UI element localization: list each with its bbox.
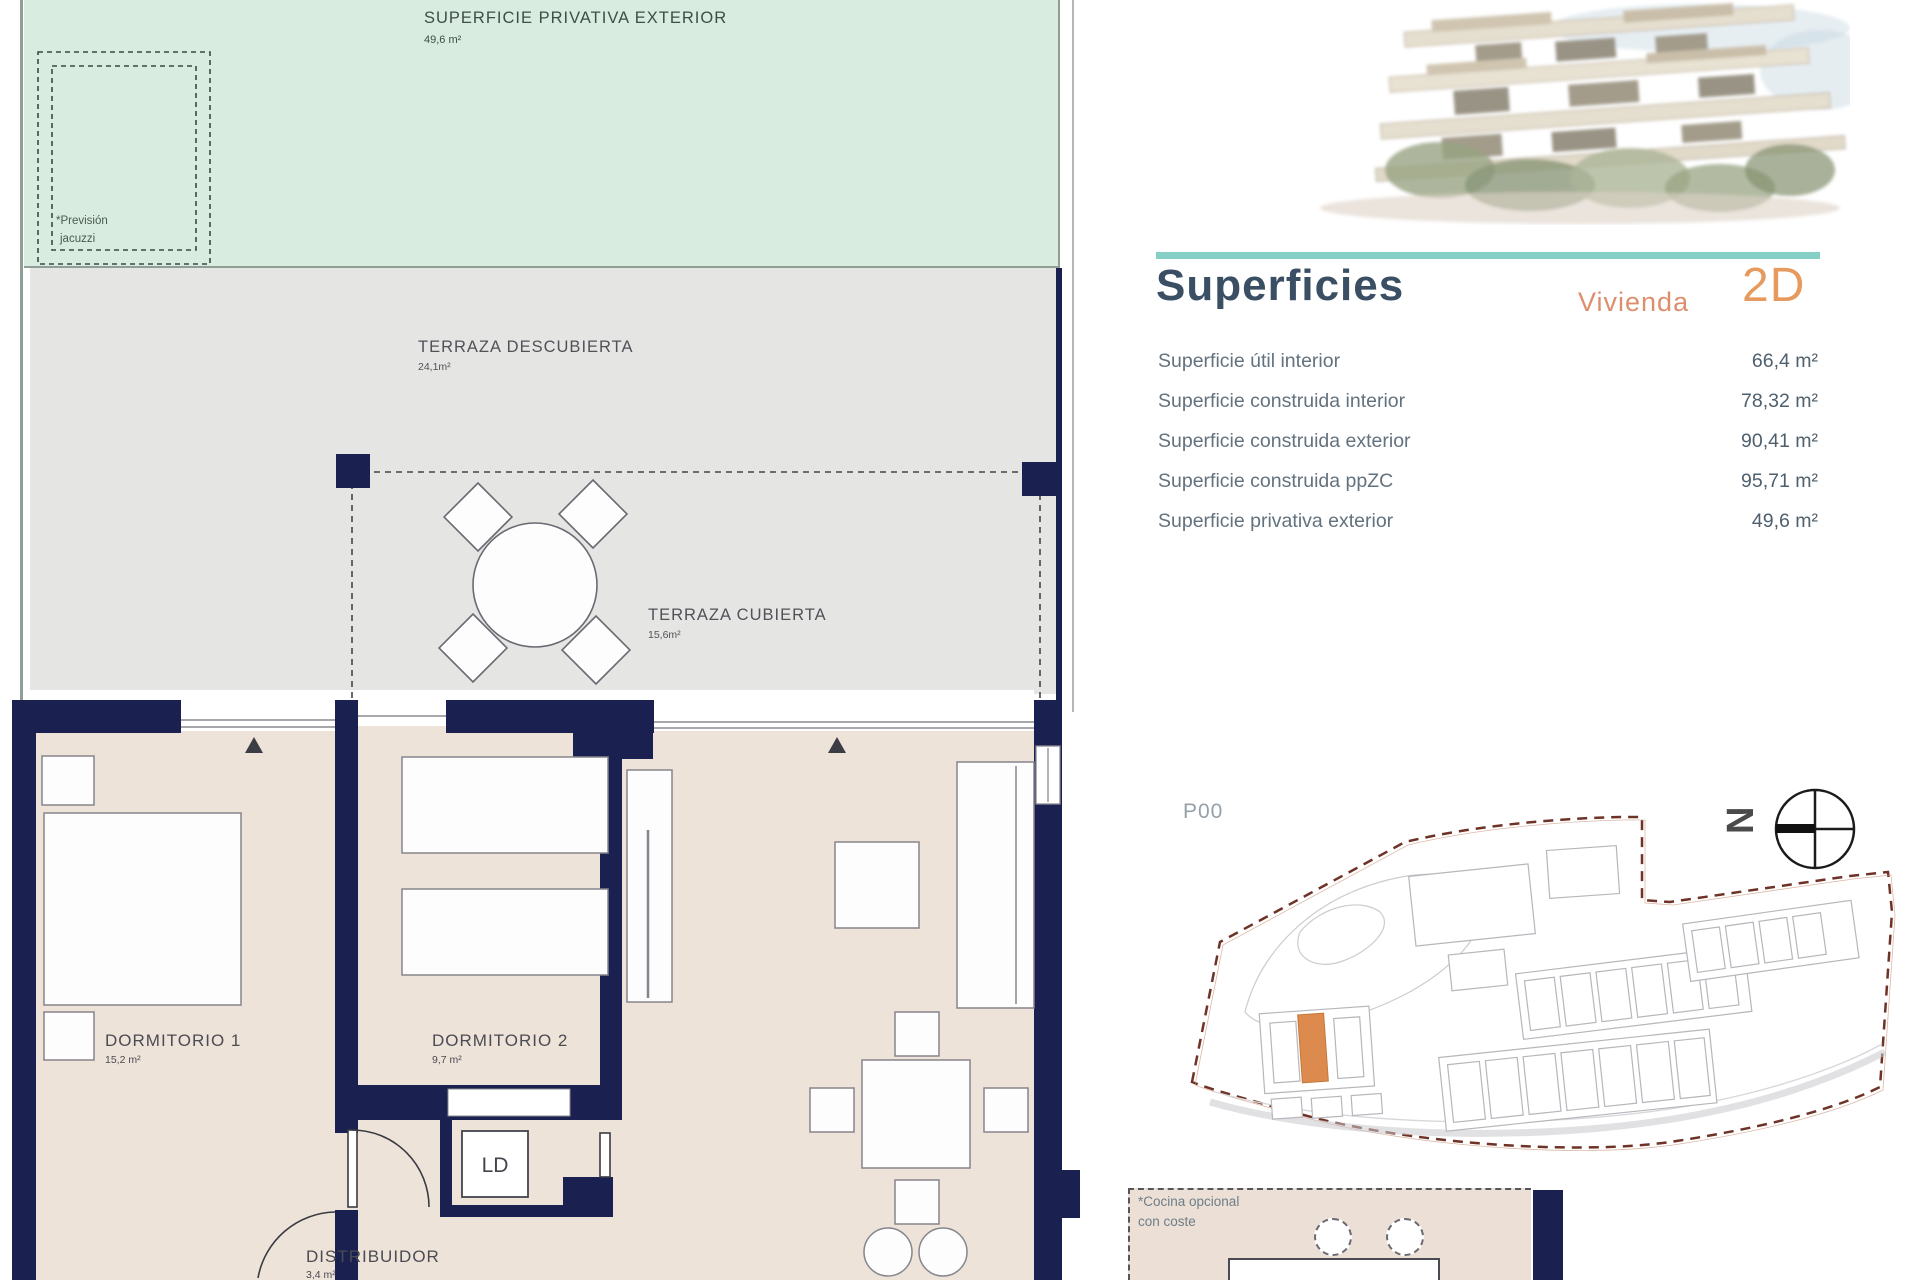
ld-label: LD xyxy=(482,1154,509,1177)
private-exterior-label: SUPERFICIE PRIVATIVA EXTERIOR xyxy=(424,9,727,27)
panel-title: Superficies xyxy=(1156,261,1404,311)
jacuzzi-note-line2: jacuzzi xyxy=(59,233,95,245)
kitchen-note-line2: con coste xyxy=(1138,1214,1196,1229)
kitchen-stool xyxy=(1386,1218,1424,1256)
table-row: Superficie construida interior 78,32 m² xyxy=(1158,390,1818,430)
table-row: Superficie construida ppZC 95,71 m² xyxy=(1158,470,1818,510)
table-row: Superficie construida exterior 90,41 m² xyxy=(1158,430,1818,470)
dormitorio2-area: 9,7 m² xyxy=(432,1054,462,1066)
terrace-column-left xyxy=(336,454,370,488)
kitchen-option-inset: *Cocina opcional con coste xyxy=(1128,1188,1596,1280)
site-plan xyxy=(1150,812,1920,1180)
row-value: 49,6 m² xyxy=(1752,510,1818,533)
terrace-column-right xyxy=(1022,462,1056,496)
closet xyxy=(448,1089,570,1116)
row-value: 66,4 m² xyxy=(1752,350,1818,373)
teal-divider xyxy=(1156,252,1820,259)
covered-terrace-area: 15,6m² xyxy=(648,629,681,641)
dormitorio1-area: 15,2 m² xyxy=(105,1054,141,1066)
open-terrace-label: TERRAZA DESCUBIERTA xyxy=(418,338,634,356)
dormitorio1-label: DORMITORIO 1 xyxy=(105,1031,241,1050)
kitchen-island xyxy=(1228,1258,1440,1280)
open-terrace-area: 24,1m² xyxy=(418,361,451,373)
highlighted-unit xyxy=(1298,1013,1329,1083)
dormitorio2-label: DORMITORIO 2 xyxy=(432,1031,568,1050)
row-label: Superficie privativa exterior xyxy=(1158,510,1393,533)
row-label: Superficie construida exterior xyxy=(1158,430,1411,453)
surface-table: Superficie útil interior 66,4 m² Superfi… xyxy=(1158,350,1818,550)
row-label: Superficie construida interior xyxy=(1158,390,1405,413)
row-value: 78,32 m² xyxy=(1741,390,1818,413)
row-label: Superficie construida ppZC xyxy=(1158,470,1393,493)
row-value: 90,41 m² xyxy=(1741,430,1818,453)
row-value: 95,71 m² xyxy=(1741,470,1818,493)
kitchen-stool xyxy=(1314,1218,1352,1256)
building-illustration xyxy=(1230,0,1850,225)
unit-label: Vivienda xyxy=(1578,287,1689,318)
covered-terrace-label: TERRAZA CUBIERTA xyxy=(648,606,827,624)
private-exterior-area: 49,6 m² xyxy=(424,34,462,46)
row-label: Superficie útil interior xyxy=(1158,350,1340,373)
kitchen-note-line1: *Cocina opcional xyxy=(1138,1194,1239,1209)
distribuidor-area: 3,4 m² xyxy=(306,1269,336,1280)
distribuidor-label: DISTRIBUIDOR xyxy=(306,1247,440,1266)
table-row: Superficie útil interior 66,4 m² xyxy=(1158,350,1818,390)
kitchen-wall xyxy=(1533,1190,1563,1280)
jacuzzi-note-line1: *Previsión xyxy=(56,215,108,227)
table-row: Superficie privativa exterior 49,6 m² xyxy=(1158,510,1818,550)
floor-plan: *Previsión jacuzzi SUPERFICIE PRIVATIVA … xyxy=(0,0,1080,1280)
unit-code: 2D xyxy=(1742,258,1805,313)
